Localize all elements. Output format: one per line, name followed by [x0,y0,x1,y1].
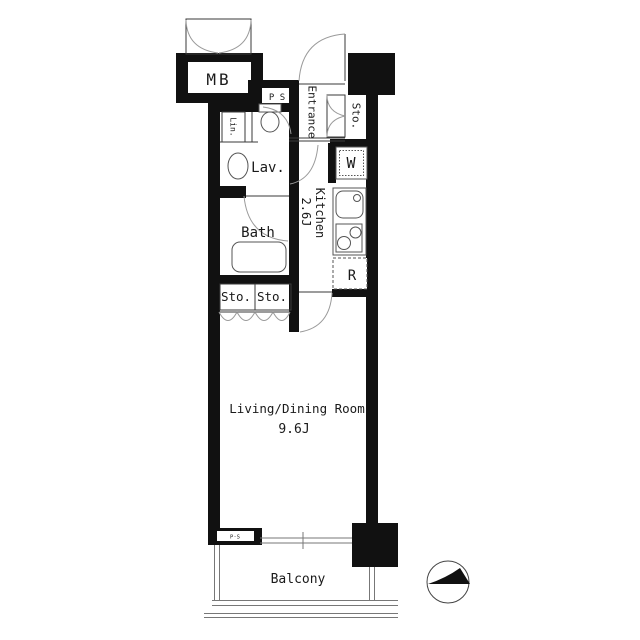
entrance-door-arc [299,34,345,81]
kitchen-label: Kitchen [313,188,327,239]
wall-left-exterior [208,103,220,545]
pillar-bottom-right [352,523,398,567]
closet-bifold-scallops [219,312,290,321]
entrance-storage-label: Sto. [350,103,363,130]
storage-left-label: Sto. [221,289,251,304]
ps-bottom-label: P·S [230,535,240,541]
kitchen-size-label: 2.6J [299,198,313,227]
linen-label: Lin. [229,117,238,136]
balcony-label: Balcony [271,572,326,587]
floor-plan-svg: MB P S Entrance Sto. Lin. Lav. W Kitchen… [0,0,640,640]
wall-washer-top [330,139,374,147]
compass-icon [427,561,470,603]
stove-burner-1 [338,237,351,250]
ps-top-label: P S [269,93,285,103]
wall-top-bar [208,103,298,112]
entrance-label: Entrance [306,86,319,139]
mb-label: MB [206,70,231,89]
wash-basin-icon [228,153,248,179]
mb-door-frame [186,19,251,54]
wall-washer-left [328,143,336,183]
wall-bath-bottom [208,275,299,284]
bath-label: Bath [241,225,275,241]
entrance-storage-arc-top [327,95,345,116]
floor-plan-canvas: MB P S Entrance Sto. Lin. Lav. W Kitchen… [0,0,640,640]
wall-lav-bath-divider [208,186,246,198]
fridge-label: R [348,268,357,284]
entrance-storage-door-frame [327,95,345,137]
mb-door-arc-left [186,20,218,53]
living-label: Living/Dining Room [229,401,364,416]
wall-living-top-right [332,289,374,297]
lavatory-label: Lav. [251,160,285,176]
bathtub-icon [232,242,286,272]
living-door-arc [300,293,332,332]
pillar-top-right [348,53,395,95]
washer-label: W [346,154,356,172]
toilet-bowl-icon [261,112,279,132]
storage-right-label: Sto. [257,289,287,304]
wall-right-exterior [366,93,378,523]
living-size-label: 9.6J [278,422,309,437]
sink-drain-icon [354,195,361,202]
mb-door-arc-right [219,20,251,53]
entrance-storage-arc-bottom [327,116,345,137]
stove-burner-2 [350,227,361,238]
